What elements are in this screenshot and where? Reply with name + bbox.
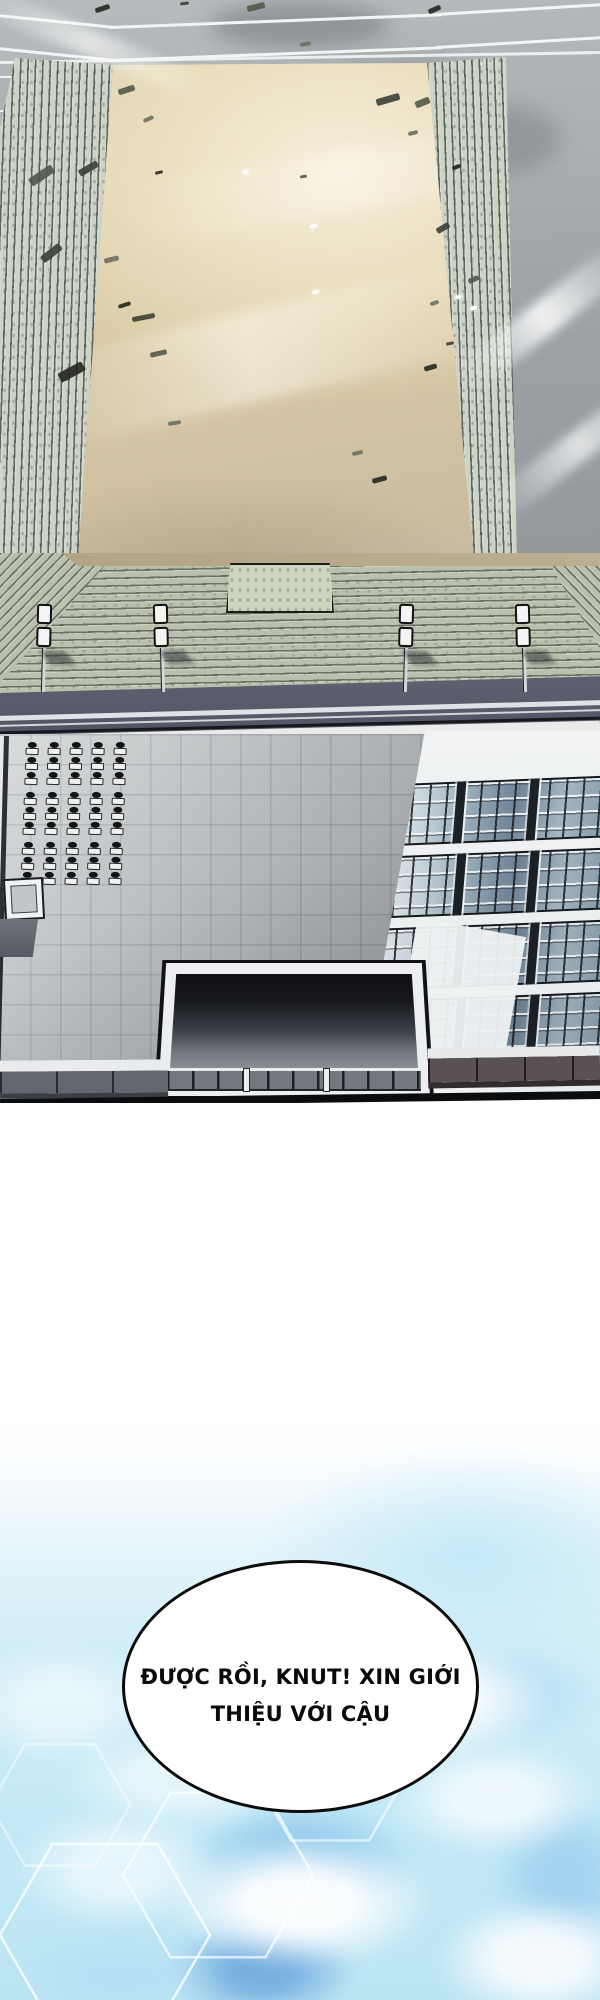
desk-top <box>87 863 100 870</box>
speech-text: ĐƯỢC RỒI, KNUT! XIN GIỚI THIỆU VỚI CẬU <box>140 1659 460 1733</box>
desk-top <box>86 878 99 885</box>
desk-top <box>113 763 126 770</box>
railing-post <box>243 1068 250 1092</box>
desk-unit <box>112 741 129 757</box>
panel-frame-bar <box>526 850 540 912</box>
arena-illustration <box>0 0 600 1103</box>
desk-top <box>90 778 103 785</box>
desk-unit <box>45 791 62 807</box>
desk-top <box>91 748 104 755</box>
desk-unit <box>65 841 82 857</box>
desk-top <box>108 878 121 885</box>
plaza-monument <box>3 877 45 921</box>
speech-line: ĐƯỢC RỒI, KNUT! XIN GIỚI <box>140 1659 460 1696</box>
desk-top <box>44 828 57 835</box>
desk-top <box>22 848 35 855</box>
desk-top <box>25 748 38 755</box>
desk-unit <box>68 741 85 757</box>
desk-unit <box>85 871 102 887</box>
desk-top <box>25 763 38 770</box>
desk-top <box>69 748 82 755</box>
desk-unit <box>20 856 37 872</box>
desk-unit <box>67 791 84 807</box>
desk-top <box>24 778 37 785</box>
monument-face <box>10 884 37 913</box>
hexagon-outline <box>123 1793 313 1958</box>
desk-top <box>22 828 35 835</box>
desk-top <box>69 763 82 770</box>
panel-frame-bar <box>452 853 466 915</box>
desk-unit <box>90 741 107 757</box>
desk-top <box>66 848 79 855</box>
desk-unit <box>86 856 103 872</box>
desk-unit <box>64 856 81 872</box>
panel-frame-bar <box>526 922 540 984</box>
desk-column <box>63 741 85 892</box>
desk-unit <box>23 791 40 807</box>
desk-top <box>109 863 122 870</box>
lower-band-right <box>428 1046 600 1089</box>
desk-unit <box>107 871 124 887</box>
desk-unit <box>41 871 58 887</box>
desk-unit <box>112 756 129 772</box>
desk-top <box>23 813 36 820</box>
desk-unit <box>66 806 83 822</box>
desk-top <box>65 863 78 870</box>
desk-unit <box>110 806 127 822</box>
desk-top <box>111 813 124 820</box>
desk-unit <box>111 791 128 807</box>
desk-top <box>67 813 80 820</box>
desk-top <box>47 748 60 755</box>
desk-top <box>43 863 56 870</box>
recess-railing <box>167 1069 421 1091</box>
desk-top <box>89 813 102 820</box>
railing-post <box>323 1068 330 1092</box>
sky-illustration: ĐƯỢC RỒI, KNUT! XIN GIỚI THIỆU VỚI CẬU <box>0 1405 600 2000</box>
monument-shadow <box>0 919 38 957</box>
desk-unit <box>43 841 60 857</box>
desk-top <box>46 798 59 805</box>
desk-unit <box>111 771 128 787</box>
panel-frame-bar <box>452 781 466 843</box>
desk-unit <box>87 821 104 837</box>
desk-unit <box>109 841 126 857</box>
desk-unit <box>44 806 61 822</box>
desk-top <box>45 813 58 820</box>
desk-top <box>46 778 59 785</box>
desk-top <box>112 798 125 805</box>
desk-top <box>44 848 57 855</box>
desk-top <box>42 878 55 885</box>
desk-unit <box>65 821 82 837</box>
desk-unit <box>43 821 60 837</box>
desk-column <box>19 741 41 892</box>
desk-unit <box>90 756 107 772</box>
desk-unit <box>63 871 80 887</box>
desk-unit <box>21 821 38 837</box>
desk-top <box>113 748 126 755</box>
desk-unit <box>68 756 85 772</box>
desk-top <box>64 878 77 885</box>
desk-top <box>24 798 37 805</box>
speech-bubble: ĐƯỢC RỒI, KNUT! XIN GIỚI THIỆU VỚI CẬU <box>122 1560 479 1813</box>
desk-top <box>47 763 60 770</box>
desk-unit <box>22 806 39 822</box>
desk-unit <box>45 771 62 787</box>
desk-top <box>21 863 34 870</box>
panel-frame-bar <box>526 778 540 840</box>
desk-top <box>110 828 123 835</box>
desk-unit <box>46 741 63 757</box>
desk-top <box>110 848 123 855</box>
lower-band-left <box>0 1059 168 1098</box>
desk-top <box>68 798 81 805</box>
desk-unit <box>46 756 63 772</box>
desk-unit <box>87 841 104 857</box>
desk-top <box>90 798 103 805</box>
desk-unit <box>109 821 126 837</box>
comic-page: ĐƯỢC RỒI, KNUT! XIN GIỚI THIỆU VỚI CẬU <box>0 0 600 2000</box>
desk-top <box>68 778 81 785</box>
desk-top <box>66 828 79 835</box>
desk-unit <box>24 741 41 757</box>
desk-column <box>85 741 107 892</box>
solar-panel-bank <box>372 847 600 919</box>
recess-pit <box>170 974 418 1068</box>
hexagon-outline <box>0 1744 130 1865</box>
desk-top <box>91 763 104 770</box>
desk-top <box>112 778 125 785</box>
hexagon-outline <box>0 1844 210 2000</box>
desk-unit <box>21 841 38 857</box>
desk-top <box>88 848 101 855</box>
desk-unit <box>88 806 105 822</box>
desk-unit <box>108 856 125 872</box>
desk-column <box>107 741 129 892</box>
desk-top <box>88 828 101 835</box>
desk-unit <box>42 856 59 872</box>
speech-line: THIỆU VỚI CẬU <box>140 1696 460 1733</box>
desk-unit <box>23 771 40 787</box>
desk-unit <box>89 791 106 807</box>
desk-unit <box>24 756 41 772</box>
desk-unit <box>67 771 84 787</box>
desk-column <box>41 741 63 892</box>
desk-unit <box>89 771 106 787</box>
